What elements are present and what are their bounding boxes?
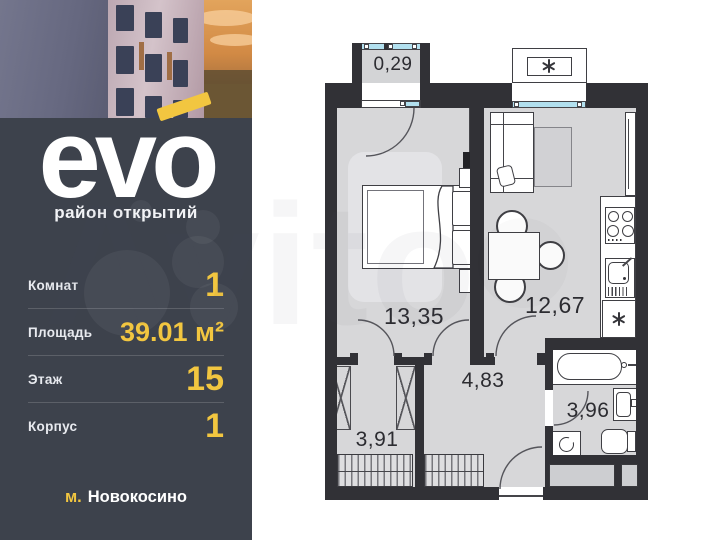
wardrobe-rack [337,454,413,487]
wall [325,487,499,500]
bath-sink-basin [616,392,631,417]
vent-shaft [621,464,638,487]
vent-shaft [549,464,615,487]
wall [420,83,512,108]
room-area-hallway: 4,83 [453,369,513,393]
stat-floor: Этаж 15 [28,356,224,402]
sofa-armrest [490,124,534,125]
window-mullion [514,102,519,107]
evo-logo: evo [0,103,252,215]
dining-chair [536,241,565,270]
stove-knobs [608,239,622,241]
hallway-rack [424,454,484,487]
window-mullion [577,102,582,107]
pillow [452,191,472,226]
toilet-tank [627,431,636,452]
stat-building: Корпус 1 [28,403,224,449]
window-mullion [412,44,417,49]
stat-area: Площадь 39.01 м² [28,309,224,355]
room-area-balcony: 0,29 [368,54,418,76]
bathtub-basin [557,353,622,380]
sink-drain [623,277,626,280]
stat-value: 39.01 м² [120,317,224,348]
kitchen-window [512,101,586,108]
metro-name: Новокосино [88,488,187,506]
door-jamb [537,353,545,365]
pillow [452,230,472,265]
wall [415,365,424,487]
fridge-snowflake-icon [612,312,626,326]
dining-table [488,232,540,280]
stat-value: 1 [205,407,224,446]
door-jamb [424,353,432,365]
entrance-threshold [499,495,543,497]
logo-tagline: район открытий [0,203,252,223]
kitchen-door-arc [495,315,537,357]
room-area-wardrobe: 3,91 [347,428,407,452]
burner [607,225,619,237]
stat-label: Этаж [28,372,63,387]
balcony-door-arc [365,107,415,157]
wall [636,83,648,500]
mattress [367,190,424,264]
wall [325,83,337,500]
wall [545,338,648,350]
burner [622,225,634,237]
door-jamb [394,353,402,365]
entrance-door-arc [499,446,543,490]
window-mullion [364,44,369,49]
stat-label: Корпус [28,419,77,434]
toilet [601,429,628,454]
room-area-bathroom: 3,96 [558,399,618,423]
burner [608,211,619,222]
blanket [426,185,454,269]
drainboard [608,287,629,296]
stat-value: 15 [186,360,224,399]
wall [325,83,362,108]
balcony-post [420,43,430,83]
ac-snowflake-icon [542,59,556,73]
metro-m-icon: м. [65,488,82,506]
stat-label: Площадь [28,325,92,340]
stat-label: Комнат [28,278,78,293]
door-jamb [486,353,494,365]
sink-basin [608,262,629,284]
tall-cabinet [625,112,636,196]
stat-rooms: Комнат 1 [28,262,224,308]
bathtub-faucet [621,362,627,368]
burner [622,211,633,222]
balcony-post [352,43,362,83]
metro-station: м.Новокосино [0,488,252,507]
wardrobe-column [396,366,416,430]
interior-wall [470,108,484,365]
window-mullion [400,101,405,106]
room-area-bedroom: 13,35 [374,303,454,330]
room-area-kitchen: 12,67 [515,292,595,319]
sofa-chaise [534,127,572,187]
stat-value: 1 [205,266,224,305]
window-mullion [388,44,393,49]
apartment-stats: Комнат 1 Площадь 39.01 м² Этаж 15 Корпус… [28,262,224,449]
